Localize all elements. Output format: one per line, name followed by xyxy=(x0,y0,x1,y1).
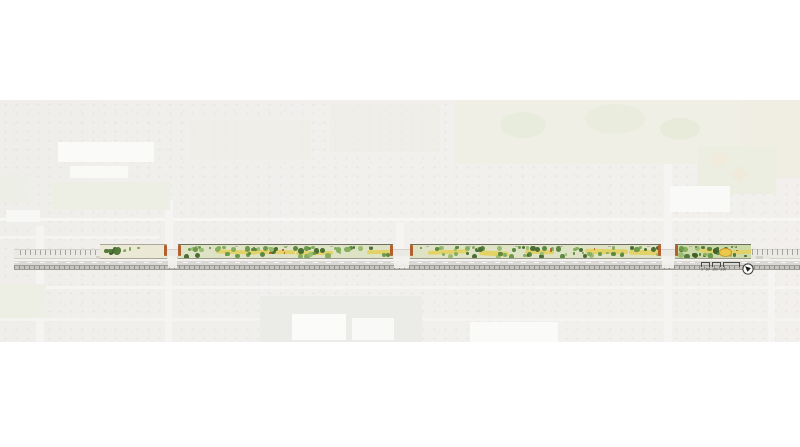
rust-accent-dot xyxy=(282,249,284,251)
tree-canopy xyxy=(701,246,705,250)
tree-canopy xyxy=(611,252,615,256)
rust-accent-dot xyxy=(269,252,271,254)
scale-bar: 0' 50' 100' 200' xyxy=(701,262,742,274)
tree-canopy xyxy=(530,246,536,252)
intersection-2-crosswalk xyxy=(394,256,409,268)
tree-canopy xyxy=(733,253,737,257)
scale-bar-segment xyxy=(712,262,721,267)
tree-canopy xyxy=(251,248,255,252)
rust-accent-dot xyxy=(736,250,738,252)
scale-bar-ticks xyxy=(701,262,742,267)
tree-canopy xyxy=(583,254,587,258)
site-furniture xyxy=(330,246,333,248)
tree-canopy xyxy=(565,253,568,256)
tree-canopy xyxy=(454,252,458,256)
scale-label-0: 0' xyxy=(701,268,704,272)
corner-paving-cap xyxy=(410,245,412,257)
tree-canopy xyxy=(188,248,191,251)
site-furniture xyxy=(235,246,238,248)
corner-paving-cap xyxy=(178,245,180,257)
site-plan-canvas: 0' 50' 100' 200' xyxy=(0,0,800,447)
tree-canopy xyxy=(320,248,325,253)
tree-canopy xyxy=(448,254,453,259)
tree-canopy xyxy=(678,252,684,258)
tree-canopy xyxy=(560,254,564,258)
site-furniture xyxy=(733,246,736,248)
tree-canopy xyxy=(108,249,112,253)
shrub-dot xyxy=(129,249,131,251)
tree-canopy xyxy=(693,253,698,258)
tree-canopy xyxy=(325,253,331,258)
tree-canopy xyxy=(684,254,689,259)
tree-canopy xyxy=(587,252,591,256)
site-furniture xyxy=(370,246,373,248)
intersection-1-crosswalk xyxy=(168,256,177,268)
legend: 0' 50' 100' 200' xyxy=(701,261,757,279)
rust-accent-dot xyxy=(284,252,286,254)
plaza-accent-circle xyxy=(719,248,732,257)
shrub-dot xyxy=(124,249,126,251)
planting-segment-4 xyxy=(675,244,751,259)
shrub-dot xyxy=(138,247,140,249)
tree-canopy xyxy=(630,246,634,250)
tree-canopy xyxy=(235,254,239,258)
site-furniture xyxy=(608,246,611,248)
tree-canopy xyxy=(184,254,189,258)
site-furniture xyxy=(515,246,518,248)
corner-paving-cap xyxy=(164,245,166,257)
tree-canopy xyxy=(353,246,355,248)
corner-paving-cap xyxy=(675,245,677,257)
tree-canopy xyxy=(606,252,609,255)
site-furniture xyxy=(560,246,563,248)
tree-canopy xyxy=(612,246,616,250)
tree-canopy xyxy=(260,252,265,257)
tree-canopy xyxy=(573,248,576,251)
tree-canopy xyxy=(334,247,337,250)
tree-canopy xyxy=(308,252,313,257)
tree-canopy xyxy=(466,252,469,255)
scale-bar-segment xyxy=(723,262,740,267)
tree-canopy xyxy=(699,253,702,256)
tree-canopy xyxy=(209,247,212,250)
tree-canopy xyxy=(257,247,260,250)
planting-segment-2 xyxy=(178,244,393,259)
tree-canopy xyxy=(248,252,251,255)
tree-canopy xyxy=(540,252,544,256)
scale-label-100: 100' xyxy=(712,268,718,272)
site-furniture xyxy=(468,246,471,248)
intersection-3-crosswalk xyxy=(662,256,674,268)
tree-canopy xyxy=(293,246,298,251)
tree-canopy xyxy=(707,247,712,252)
tree-canopy xyxy=(708,253,713,258)
tree-canopy xyxy=(345,247,351,253)
tree-canopy xyxy=(274,247,278,251)
curb-hatch-right xyxy=(752,249,800,255)
tree-canopy xyxy=(311,246,314,249)
tree-canopy xyxy=(114,250,119,255)
tree-canopy xyxy=(215,247,220,252)
tree-canopy xyxy=(498,252,502,256)
tree-canopy xyxy=(526,246,529,249)
tree-canopy xyxy=(195,253,200,258)
planting-segment-3 xyxy=(410,244,661,259)
site-furniture xyxy=(689,246,692,248)
tree-canopy xyxy=(509,254,514,258)
tree-canopy xyxy=(245,246,250,251)
scale-label-200: 200' xyxy=(720,268,726,272)
tree-canopy xyxy=(620,253,624,257)
tree-canopy xyxy=(298,254,303,258)
tree-canopy xyxy=(298,248,304,254)
tree-canopy xyxy=(199,248,204,253)
streetscape-plan-layer xyxy=(0,0,800,447)
tree-canopy xyxy=(339,252,341,254)
curb-hatch-left xyxy=(20,250,98,255)
tree-canopy xyxy=(598,252,602,256)
rust-accent-dot xyxy=(550,250,552,252)
scale-bar-labels: 0' 50' 100' 200' xyxy=(701,268,729,272)
north-arrow-icon xyxy=(742,263,754,275)
site-furniture xyxy=(647,246,650,248)
site-furniture xyxy=(426,246,429,248)
tree-canopy xyxy=(573,252,576,255)
tree-canopy xyxy=(442,253,445,256)
tree-canopy xyxy=(522,246,525,249)
tree-canopy xyxy=(420,247,422,249)
tree-canopy xyxy=(193,247,197,251)
scale-bar-segment xyxy=(701,262,710,267)
tree-canopy xyxy=(231,247,236,252)
tree-canopy xyxy=(455,246,458,249)
tree-canopy xyxy=(472,254,477,258)
tree-canopy xyxy=(518,246,520,248)
corner-paving-cap xyxy=(390,245,392,257)
planting-segment-1 xyxy=(100,244,167,259)
tree-canopy xyxy=(360,248,362,250)
tree-canopy xyxy=(386,253,390,257)
tree-canopy xyxy=(634,247,640,253)
site-furniture xyxy=(195,246,198,248)
tree-canopy xyxy=(744,255,747,258)
corner-paving-cap xyxy=(658,245,660,257)
tree-canopy xyxy=(512,248,516,252)
tree-canopy xyxy=(263,246,268,251)
site-furniture xyxy=(285,246,288,248)
scale-label-50: 50' xyxy=(706,268,710,272)
